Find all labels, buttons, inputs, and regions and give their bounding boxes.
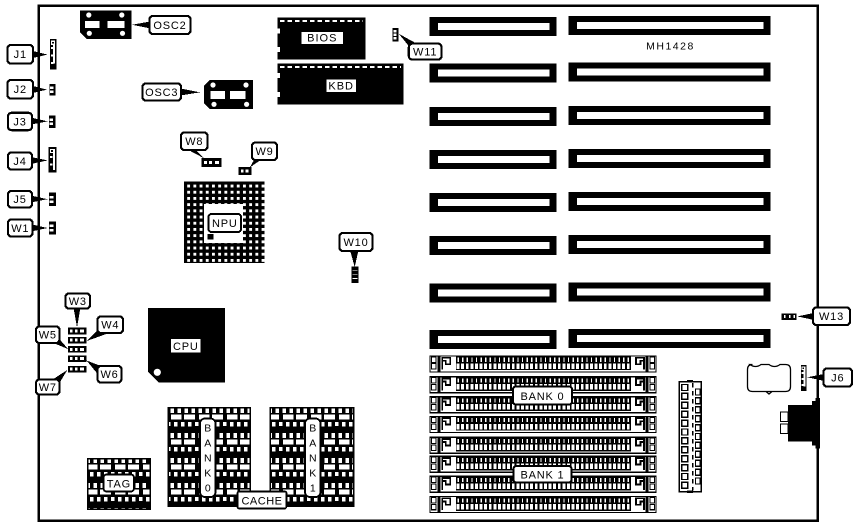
svg-text:J5: J5: [13, 194, 26, 206]
svg-text:W5: W5: [39, 330, 57, 342]
svg-text:B: B: [204, 423, 211, 435]
svg-text:W8: W8: [185, 136, 203, 148]
svg-text:0: 0: [205, 483, 211, 495]
svg-text:N: N: [309, 453, 317, 465]
svg-text:J3: J3: [13, 116, 26, 128]
svg-text:W10: W10: [343, 237, 368, 249]
svg-text:A: A: [309, 438, 316, 450]
svg-text:J1: J1: [14, 49, 27, 61]
svg-text:W1: W1: [11, 223, 29, 235]
svg-text:BANK 0: BANK 0: [521, 391, 565, 403]
svg-text:J2: J2: [14, 84, 27, 96]
svg-text:A: A: [204, 438, 211, 450]
svg-text:K: K: [309, 468, 316, 480]
svg-text:W4: W4: [101, 320, 119, 332]
svg-text:BANK 1: BANK 1: [521, 470, 565, 482]
svg-text:K: K: [204, 468, 211, 480]
svg-text:KBD: KBD: [328, 81, 354, 93]
svg-text:OSC2: OSC2: [153, 20, 186, 32]
svg-text:J4: J4: [13, 156, 26, 168]
svg-text:N: N: [204, 453, 212, 465]
svg-text:CPU: CPU: [173, 341, 199, 353]
svg-text:W3: W3: [69, 296, 87, 308]
svg-text:TAG: TAG: [107, 478, 131, 490]
svg-text:W11: W11: [413, 47, 437, 59]
svg-text:BIOS: BIOS: [307, 33, 337, 45]
svg-text:W13: W13: [819, 311, 844, 323]
svg-text:W6: W6: [100, 369, 118, 381]
svg-text:CACHE: CACHE: [241, 495, 282, 507]
svg-text:W9: W9: [255, 146, 273, 158]
svg-text:NPU: NPU: [212, 218, 238, 230]
svg-text:J6: J6: [831, 372, 844, 384]
svg-text:1: 1: [310, 483, 316, 495]
svg-text:MH1428: MH1428: [646, 40, 695, 52]
svg-text:OSC3: OSC3: [145, 87, 178, 99]
svg-text:B: B: [309, 423, 316, 435]
svg-text:W7: W7: [39, 382, 57, 394]
